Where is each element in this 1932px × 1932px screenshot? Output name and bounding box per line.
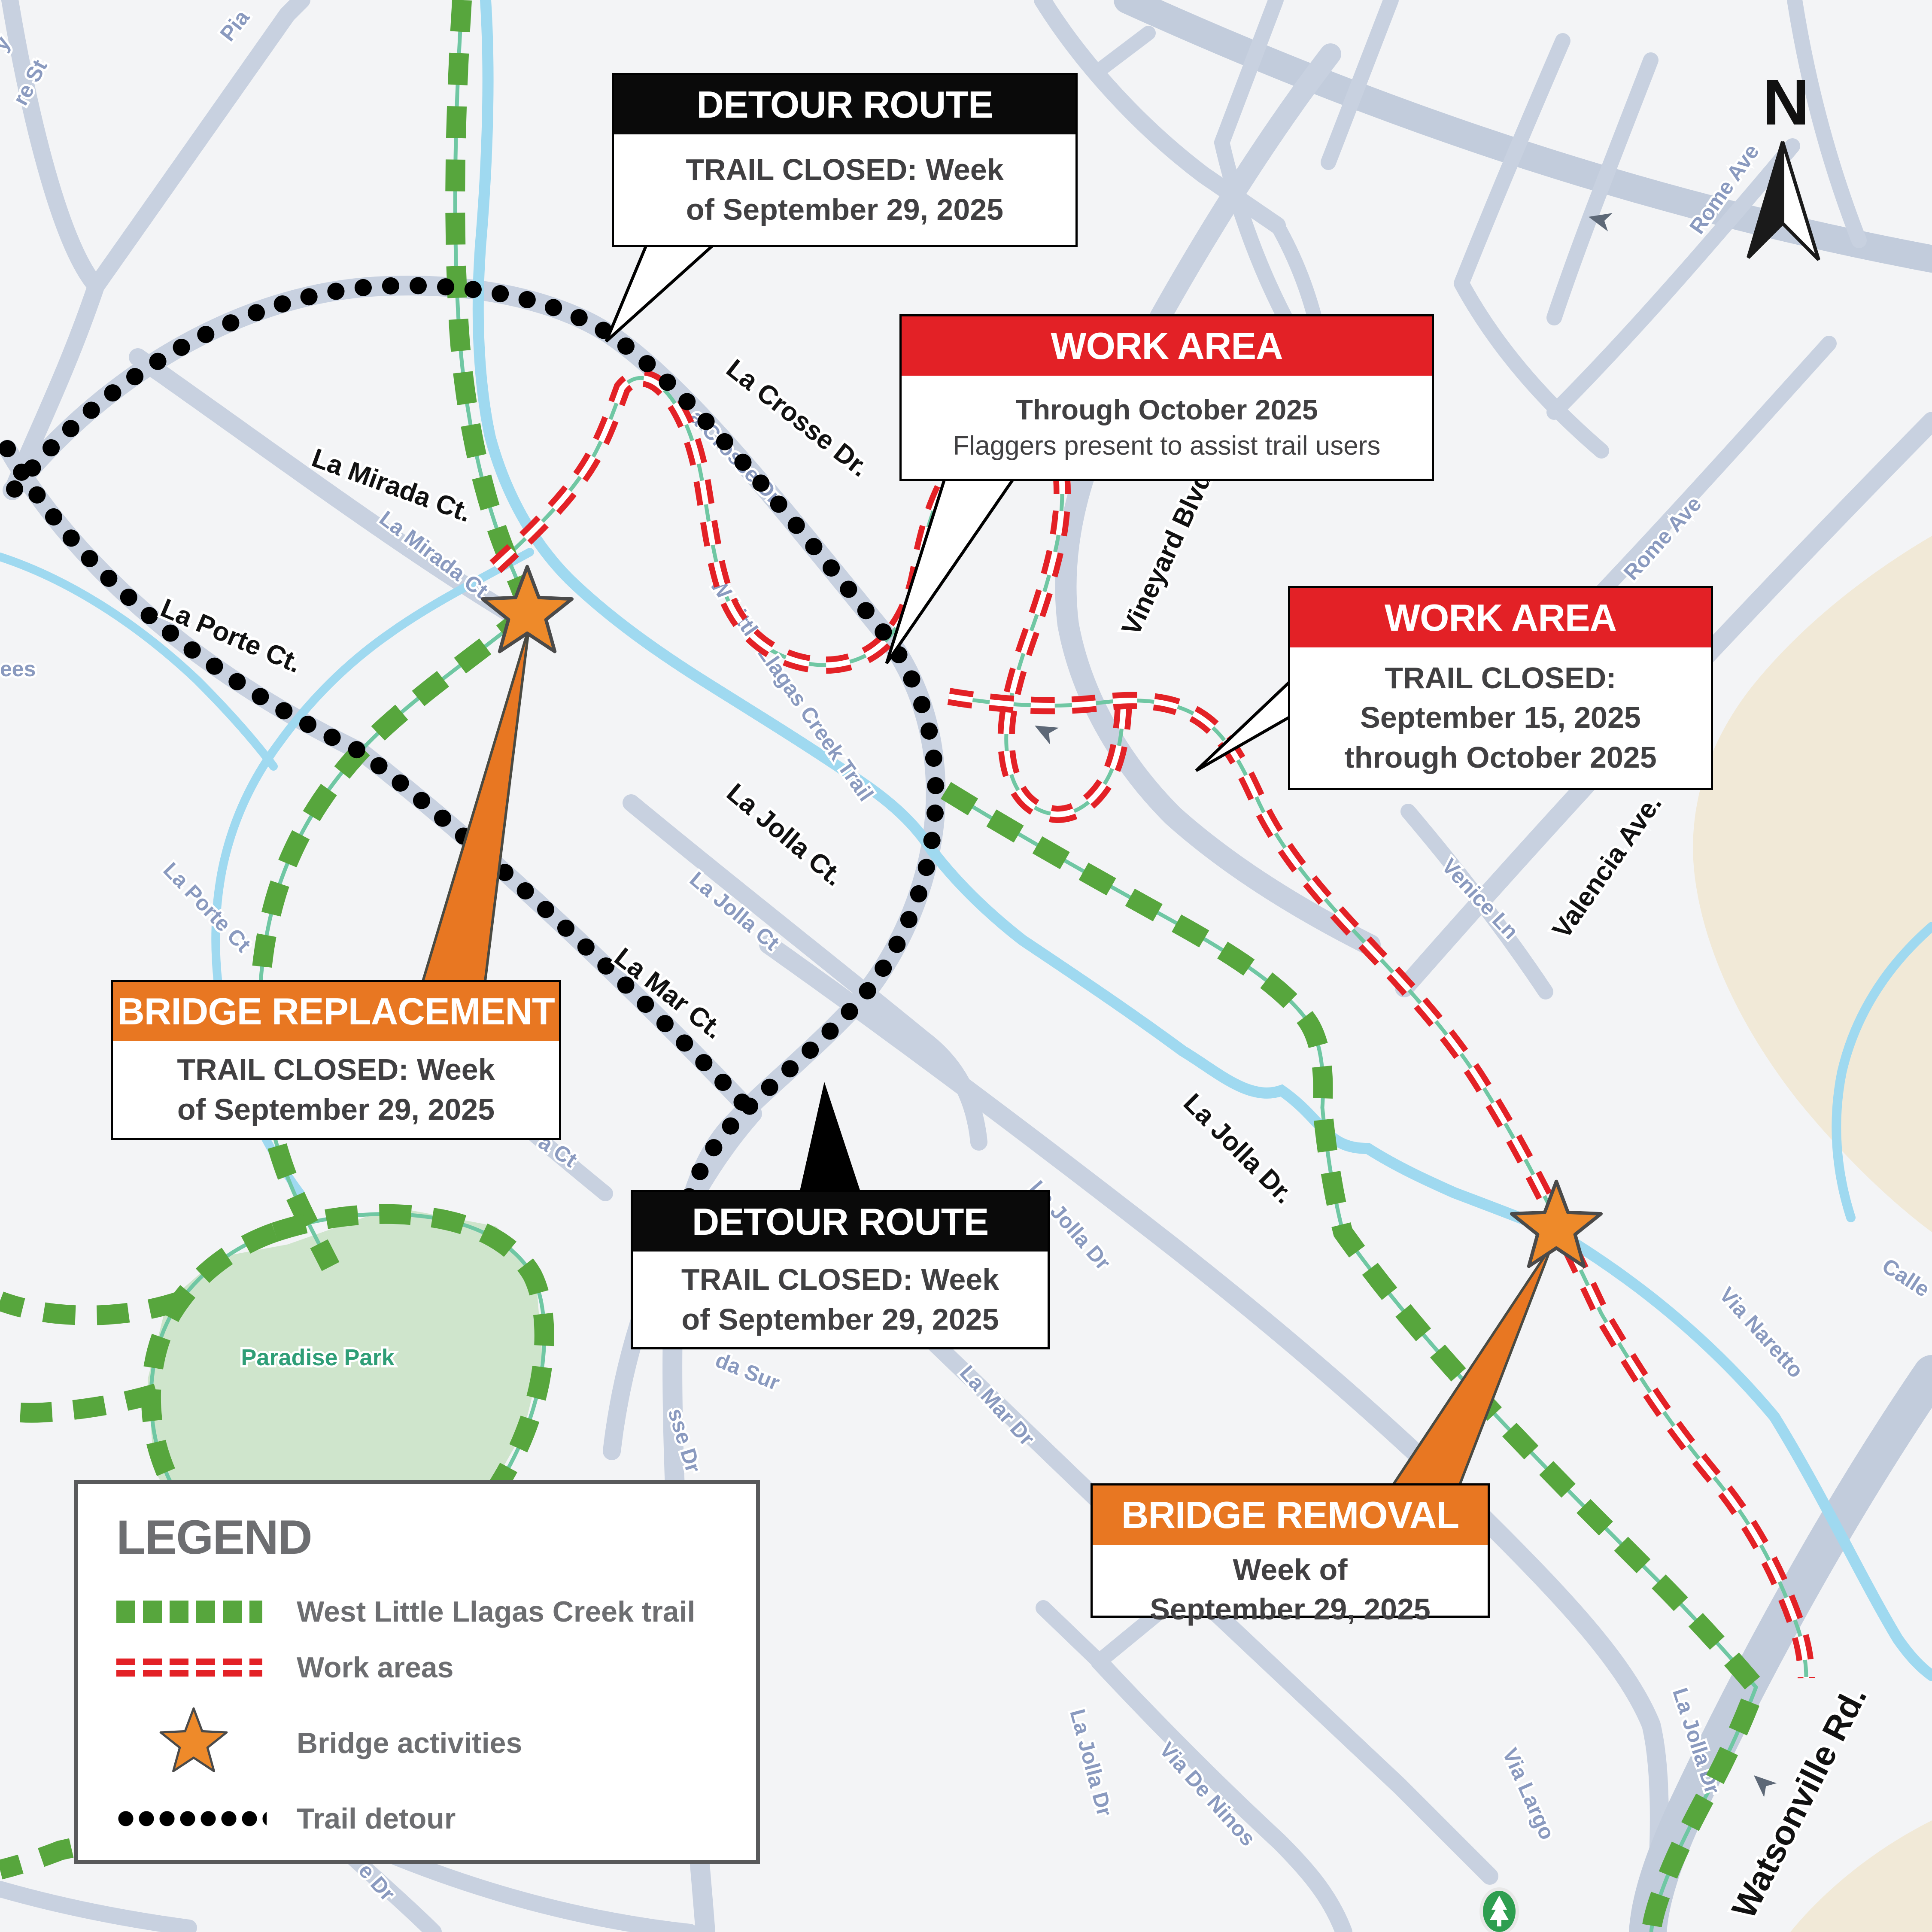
work-area-swatch-icon: [116, 1659, 271, 1677]
callout-line: TRAIL CLOSED:: [1385, 658, 1616, 698]
legend-item-label: Trail detour: [297, 1802, 456, 1835]
callout-header: BRIDGE REMOVAL: [1093, 1485, 1488, 1545]
callout-work-area-1: WORK AREA Through October 2025 Flaggers …: [899, 314, 1434, 481]
park-name-label: Paradise Park: [241, 1345, 395, 1370]
legend-item-work: Work areas: [116, 1651, 726, 1684]
north-label: N: [1763, 66, 1809, 138]
callout-work-area-2: WORK AREA TRAIL CLOSED: September 15, 20…: [1288, 586, 1713, 790]
trail-swatch-icon: [116, 1601, 271, 1623]
legend-item-label: Bridge activities: [297, 1726, 522, 1760]
callout-header: BRIDGE REPLACEMENT: [113, 982, 559, 1041]
callout-body: Week of September 29, 2025: [1093, 1545, 1488, 1634]
callout-detour-route-2: DETOUR ROUTE TRAIL CLOSED: Week of Septe…: [631, 1190, 1050, 1349]
callout-header: DETOUR ROUTE: [633, 1192, 1048, 1252]
legend-box: LEGEND West Little Llagas Creek trail Wo…: [74, 1480, 760, 1864]
legend-item-detour: Trail detour: [116, 1802, 726, 1835]
callout-line: TRAIL CLOSED: Week: [177, 1050, 495, 1089]
legend-title: LEGEND: [116, 1510, 726, 1565]
callout-detour-route-1: DETOUR ROUTE TRAIL CLOSED: Week of Septe…: [612, 73, 1078, 247]
basemap-label: ees: [0, 657, 36, 681]
callout-line: through October 2025: [1344, 738, 1656, 777]
detour-dots-swatch-icon: [116, 1809, 271, 1828]
legend-item-label: West Little Llagas Creek trail: [297, 1595, 695, 1628]
callout-line: September 15, 2025: [1360, 698, 1641, 737]
callout-line: Week of: [1233, 1550, 1347, 1589]
callout-body: TRAIL CLOSED: Week of September 29, 2025: [113, 1041, 559, 1138]
callout-line: of September 29, 2025: [686, 190, 1003, 229]
callout-line: Through October 2025: [1015, 391, 1318, 428]
callout-line: Flaggers present to assist trail users: [953, 428, 1381, 464]
callout-header: WORK AREA: [1290, 588, 1711, 647]
callout-body: TRAIL CLOSED: Week of September 29, 2025: [633, 1252, 1048, 1347]
callout-line: September 29, 2025: [1150, 1589, 1431, 1629]
callout-bridge-replacement: BRIDGE REPLACEMENT TRAIL CLOSED: Week of…: [111, 980, 561, 1140]
star-icon: [157, 1707, 230, 1780]
callout-bridge-removal: BRIDGE REMOVAL Week of September 29, 202…: [1091, 1483, 1490, 1618]
legend-item-trail: West Little Llagas Creek trail: [116, 1595, 726, 1628]
callout-line: of September 29, 2025: [681, 1300, 999, 1339]
callout-line: of September 29, 2025: [177, 1090, 495, 1129]
bridge-star-swatch: [116, 1707, 271, 1780]
callout-line: TRAIL CLOSED: Week: [681, 1260, 999, 1299]
trail-closure-map-page: { "compass": {"north": "N"}, "park": {"n…: [0, 0, 1932, 1932]
callout-header: DETOUR ROUTE: [614, 75, 1075, 134]
park-icon: [1481, 1889, 1517, 1932]
callout-body: TRAIL CLOSED: Week of September 29, 2025: [614, 134, 1075, 245]
legend-item-bridge: Bridge activities: [116, 1707, 726, 1780]
callout-header: WORK AREA: [902, 316, 1432, 376]
legend-item-label: Work areas: [297, 1651, 453, 1684]
callout-body: Through October 2025 Flaggers present to…: [902, 376, 1432, 479]
callout-body: TRAIL CLOSED: September 15, 2025 through…: [1290, 647, 1711, 788]
callout-line: TRAIL CLOSED: Week: [686, 150, 1003, 189]
